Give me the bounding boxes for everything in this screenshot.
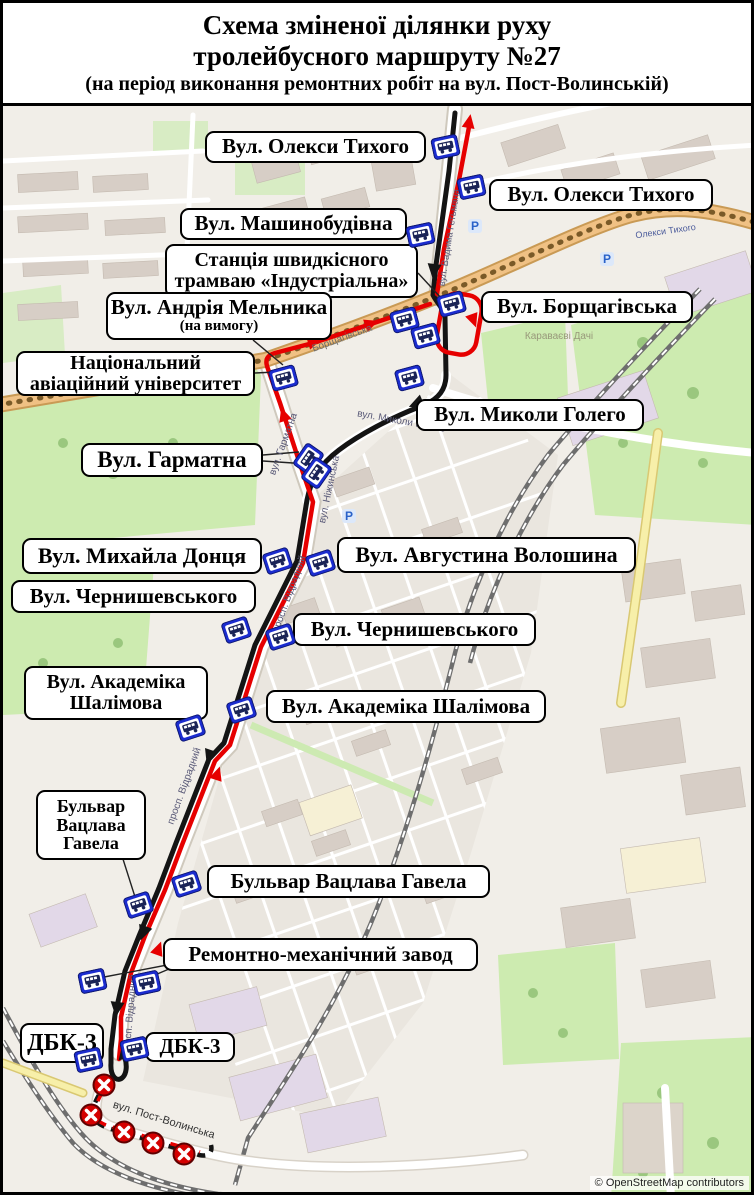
parking-icon: P [342, 509, 356, 523]
map-label-text: Вул. Чернишевського [311, 619, 519, 641]
map-label-vatslava-havela-left: БульварВацлаваГавела [36, 790, 146, 860]
osm-attribution: © OpenStreetMap contributors [590, 1176, 749, 1190]
map-label-text: Вул. Академіка Шалімова [282, 696, 530, 718]
closed-stop-icon [78, 1102, 104, 1128]
map-frame: вул. Вадима ГетьманаБорщагівськавул. Гар… [0, 0, 754, 1195]
map-label-avhustyna-voloshyna: Вул. Августина Волошина [337, 537, 636, 573]
parking-icon: P [600, 252, 614, 266]
map-label-text: Шалімова [70, 693, 163, 714]
map-label-mykoly-holeho: Вул. Миколи Голего [416, 399, 644, 431]
map-label-text: Бульвар Вацлава Гавела [231, 871, 467, 893]
closed-stop-icon [111, 1119, 137, 1145]
map-label-text: Вул. Академіка [47, 672, 186, 693]
map-label-text: (на вимогу) [180, 319, 258, 335]
title-line-2: тролейбусного маршруту №27 [193, 41, 560, 72]
map-label-text: Ремонтно-механічний завод [188, 944, 452, 966]
map-label-chernyshevskoho-left: Вул. Чернишевського [11, 580, 256, 613]
closed-stop-icon [140, 1130, 166, 1156]
map-label-andriya-melnyka: Вул. Андрія Мельника(на вимогу) [106, 292, 332, 340]
map-label-oleksy-tykhoho-right: Вул. Олекси Тихого [489, 179, 713, 211]
map-label-chernyshevskoho-right: Вул. Чернишевського [293, 613, 536, 646]
map-label-borshchahivska: Вул. Борщагівська [481, 291, 693, 323]
closed-stop-icon [91, 1072, 117, 1098]
map-label-stantsiya-industrialna: Станція швидкісноготрамваю «Індустріальн… [165, 244, 418, 298]
map-label-vatslava-havela-right: Бульвар Вацлава Гавела [207, 865, 490, 898]
map-label-text: Вацлава [56, 816, 125, 835]
map-label-akademika-shalimova-left: Вул. АкадемікаШалімова [24, 666, 208, 720]
map-label-text: Вул. Андрія Мельника [111, 297, 327, 319]
map-label-text: Вул. Олекси Тихого [508, 184, 695, 206]
map-label-text: Вул. Олекси Тихого [222, 136, 409, 158]
map-label-mashynobudivna: Вул. Машинобудівна [180, 208, 407, 240]
map-label-remontno-mekhanichnyi: Ремонтно-механічний завод [163, 938, 478, 971]
parking-icon: P [468, 219, 482, 233]
closed-stop-icon [171, 1141, 197, 1167]
map-label-text: ДБК-3 [159, 1036, 220, 1058]
map-label-text: Вул. Борщагівська [497, 296, 677, 318]
map-label-text: Станція швидкісного [194, 250, 388, 271]
map-label-text: Гавела [63, 834, 119, 853]
title-subtitle: (на період виконання ремонтних робіт на … [85, 72, 668, 96]
map-label-harmatna: Вул. Гарматна [81, 443, 263, 477]
street-name: Караваєві Дачі [525, 331, 593, 342]
map-label-text: трамваю «Індустріальна» [175, 271, 409, 292]
map-label-mykhayla-dontsya: Вул. Михайла Донця [22, 538, 262, 574]
map-label-text: Бульвар [57, 797, 125, 816]
map-label-nau: Національнийавіаційний університет [16, 351, 255, 396]
map-label-akademika-shalimova-right: Вул. Академіка Шалімова [266, 690, 546, 723]
title-box: Схема зміненої ділянки руху тролейбусног… [3, 3, 751, 106]
map-label-oleksy-tykhoho-left: Вул. Олекси Тихого [205, 131, 426, 163]
map-label-text: авіаційний університет [30, 374, 241, 395]
map-label-text: Вул. Машинобудівна [194, 213, 392, 235]
map-label-text: Вул. Михайла Донця [38, 545, 246, 568]
title-line-1: Схема зміненої ділянки руху [203, 10, 551, 41]
map-label-text: Вул. Чернишевського [30, 586, 238, 608]
map-label-text: Вул. Августина Волошина [355, 544, 617, 567]
map-label-dbk3-right: ДБК-3 [145, 1032, 235, 1062]
map-label-text: Вул. Гарматна [97, 448, 246, 472]
map-label-text: Національний [70, 353, 201, 374]
map-label-text: Вул. Миколи Голего [434, 404, 625, 426]
